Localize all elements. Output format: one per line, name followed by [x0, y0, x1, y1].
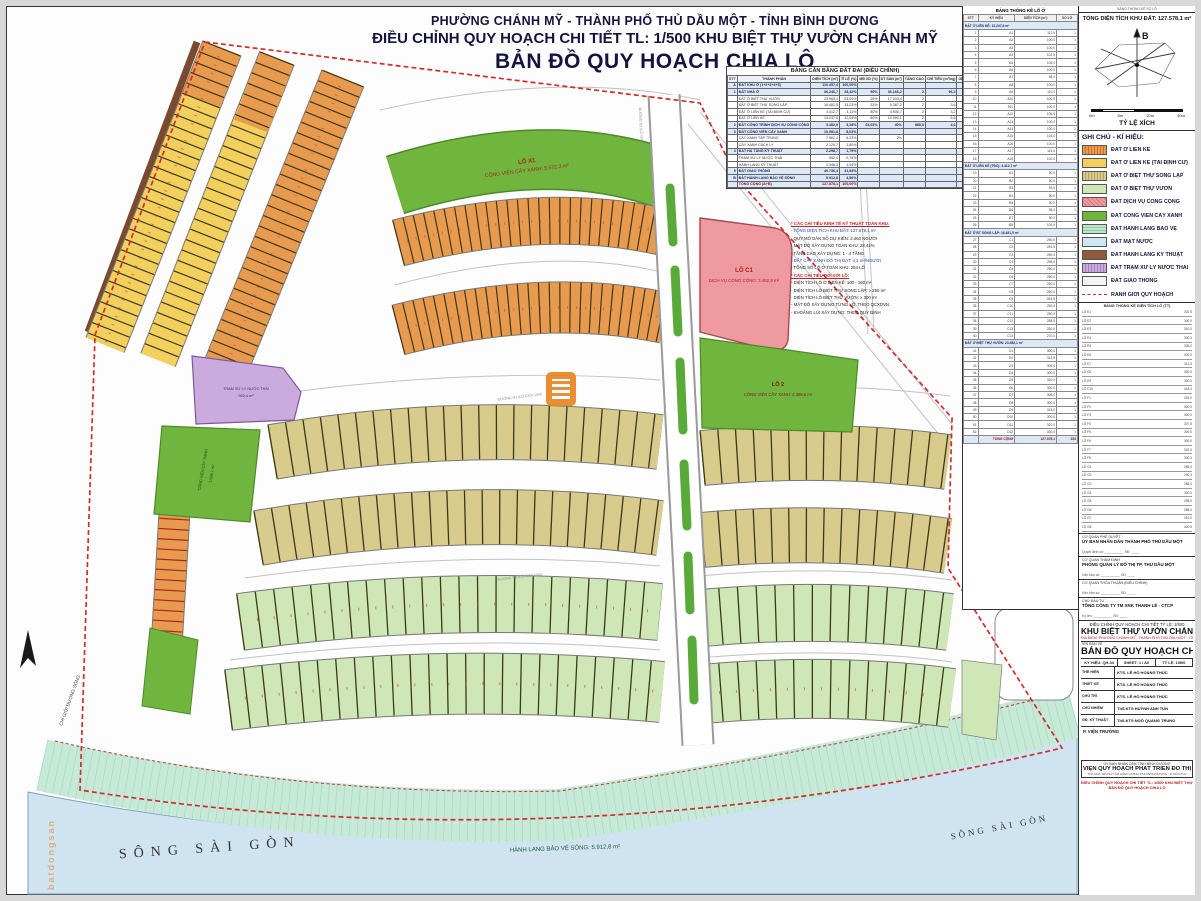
balance-cell: 33%	[858, 102, 879, 109]
note-line: - DIỆN TÍCH LÔ Ở LIÊN KẾ: 100 - 160 m²	[791, 279, 963, 286]
stats-row: 19B190,01	[964, 170, 1078, 177]
cont-lot-id: LÔ G8	[1082, 525, 1091, 529]
balance-cell	[728, 108, 738, 115]
stats-cell: 1	[964, 29, 979, 36]
stats-cell: 300,0	[1015, 347, 1057, 354]
park2-lot-label: LÔ 2	[772, 380, 784, 388]
mini-header: BẢNG THỐNG KÊ SỐ LÔ	[1079, 6, 1195, 13]
balance-col-header: DT SÀN (m²)	[879, 76, 903, 83]
road-label-1: ĐƯỜNG N3 (LỘ GIỚI 13m)	[497, 391, 542, 401]
cont-lot-id: LÔ E7	[1082, 362, 1091, 366]
stats-cell: 255,0	[1015, 258, 1057, 265]
legend-item-label: ĐẤT Ở BIỆT THỰ VƯỜN	[1111, 186, 1172, 192]
stats-cell: 1	[1057, 318, 1078, 325]
stats-row: 17A17115,01	[964, 148, 1078, 155]
stats-cell: 14	[964, 125, 979, 132]
balance-cell: 7.961,1	[811, 135, 840, 142]
stats-cell: 22	[964, 192, 979, 199]
stats-cell: B3	[978, 184, 1015, 191]
balance-cell	[879, 168, 903, 175]
stats-cell: 1	[1057, 369, 1078, 376]
balance-cell	[925, 141, 957, 148]
balance-cell: B	[728, 174, 738, 181]
stats-table-title: BẢNG THỐNG KÊ LÔ Ở	[963, 6, 1078, 14]
agency-signature-line: Ký tên: __________ SĐ: ____	[1082, 614, 1192, 618]
balance-cell	[903, 148, 925, 155]
balance-row: ĐẤT Ở LIÊN KẾ13.247,612,04%80%10.590,126…	[728, 115, 976, 122]
stats-row: 34C8250,01	[964, 288, 1078, 295]
stats-row: 25B790,01	[964, 214, 1078, 221]
balance-table-header: STTTHÀNH PHẦNDIỆN TÍCH (m²)TỈ LỆ (%)MĐ X…	[728, 76, 976, 83]
cont-lot-area: 305,0	[1184, 344, 1192, 348]
stats-row: 22B490,01	[964, 192, 1078, 199]
cont-lot-area: 300,0	[1184, 405, 1192, 409]
watermark-vertical-text: batdongsan	[46, 770, 68, 890]
cont-row: LÔ F5300,0	[1082, 429, 1192, 438]
stats-cell: A4	[978, 51, 1015, 58]
balance-cell: 4	[728, 148, 738, 155]
stats-cell: 1	[1057, 414, 1078, 421]
stats-cell: 47	[964, 391, 979, 398]
balance-cell: 4,0	[925, 122, 957, 129]
cont-lot-id: LÔ E6	[1082, 353, 1091, 357]
note-line: - TẦNG CAO XÂY DỰNG: 1 - 4 TẦNG	[791, 250, 963, 257]
stats-cell: A5	[978, 59, 1015, 66]
stats-cell: C6	[978, 273, 1015, 280]
stats-cell: C3	[978, 251, 1015, 258]
stats-cell: 90,0	[1015, 177, 1057, 184]
stats-cell: 260,0	[1015, 273, 1057, 280]
land-balance-table: BẢNG CÂN BẰNG ĐẤT ĐAI (ĐIỀU CHỈNH) STTTH…	[726, 66, 964, 189]
stats-cell: 100,0	[1015, 118, 1057, 125]
stats-cell: 106,5	[1015, 111, 1057, 118]
crew-row: CHỦ TRÌKTS. LÊ HỒ HOÀNG THÚC	[1081, 691, 1193, 703]
garden-villa-bands	[228, 604, 952, 700]
stats-cell: D7	[978, 391, 1015, 398]
cont-lot-id: LÔ G6	[1082, 508, 1091, 512]
stats-cell: D2	[978, 354, 1015, 361]
agency-block: CHỦ ĐẦU TƯTỔNG CÔNG TY TM XNK THANH LỄ -…	[1079, 598, 1195, 621]
balance-cell	[858, 148, 879, 155]
balance-cell: HÀNH LANG KỸ THUẬT	[737, 161, 810, 168]
institute-name: VIỆN QUY HOẠCH PHÁT TRIỂN ĐÔ THỊ	[1083, 766, 1191, 772]
stats-cell: 1	[1057, 266, 1078, 273]
legend-item: RANH GIỚI QUY HOẠCH	[1082, 288, 1192, 301]
crew-role: GĐ. KỸ THUẬT	[1081, 715, 1115, 726]
note-line: - MẬT ĐỘ XÂY DỰNG TỪNG LÔ: THEO QCXDVN	[791, 301, 963, 308]
stats-cell: 7	[964, 74, 979, 81]
balance-row: 4ĐẤT HẠ TẦNG KỸ THUẬT2.298,71,79%1,8	[728, 148, 976, 155]
sw-cvx-swatch	[1082, 211, 1107, 221]
scale-title: TỶ LỆ XÍCH	[1079, 120, 1195, 127]
stats-cell: 1	[1057, 354, 1078, 361]
cont-row: LÔ E10318,0	[1082, 386, 1192, 395]
stats-col-header: KÝ HIỆU	[978, 15, 1015, 22]
stats-cell: A13	[978, 118, 1015, 125]
stats-row: 18A18120,01	[964, 155, 1078, 162]
balance-cell	[903, 155, 925, 162]
cont-lot-id: LÔ G7	[1082, 516, 1091, 520]
stats-cell: 112,5	[1015, 29, 1057, 36]
cont-lot-id: LÔ E1	[1082, 310, 1091, 314]
cont-lot-id: LÔ E9	[1082, 379, 1091, 383]
stats-row: 15A15104,01	[964, 133, 1078, 140]
legend-item-label: RANH GIỚI QUY HOẠCH	[1111, 292, 1173, 298]
balance-cell: 17.033,4	[879, 95, 903, 102]
stats-cell: 310,0	[1015, 421, 1057, 428]
stats-cell: 42	[964, 354, 979, 361]
tb-drawing-code: KÝ HIỆU: QH-04	[1081, 659, 1118, 666]
cont-lot-area: 325,0	[1184, 396, 1192, 400]
stats-cell: 1	[1057, 273, 1078, 280]
balance-cell: 1.346,3	[811, 161, 840, 168]
stats-cell: 1	[1057, 170, 1078, 177]
legend-item: ĐẤT Ở BIỆT THỰ SONG LẬP	[1082, 169, 1192, 182]
cont-lot-id: LÔ E10	[1082, 387, 1093, 391]
balance-cell	[858, 128, 879, 135]
balance-cell: TỔNG CỘNG (A+B)	[737, 181, 810, 188]
stats-cell: 270,0	[1015, 332, 1057, 339]
stats-cell: D1	[978, 347, 1015, 354]
tb-project-location: ĐỊA ĐIỂM: PHƯỜNG CHÁNH MỸ - THÀNH PHỐ TH…	[1081, 636, 1193, 640]
balance-cell: 5.387,2	[879, 102, 903, 109]
balance-cell: ĐẤT Ở LIÊN KẾ (TÁI ĐỊNH CƯ)	[737, 108, 810, 115]
stats-cell: 100,0	[1015, 81, 1057, 88]
cont-row: LÔ E7312,5	[1082, 360, 1192, 369]
agency-signature-line: Văn bản số: __________ SĐ: ____	[1082, 573, 1192, 577]
balance-cell: 2	[903, 102, 925, 109]
stats-cell: 305,0	[1015, 362, 1057, 369]
cont-lot-area: 312,5	[1184, 362, 1192, 366]
wastewater-label: TRẠM XỬ LÝ NƯỚC THẢI	[223, 386, 269, 391]
cont-lot-id: LÔ F8	[1082, 456, 1091, 460]
stats-cell: 1	[1057, 59, 1078, 66]
legend-item-label: ĐẤT TRẠM XỬ LÝ NƯỚC THẢI	[1111, 265, 1188, 271]
cont-row: LÔ G4300,0	[1082, 489, 1192, 498]
legend-item-label: ĐẤT GIAO THÔNG	[1111, 278, 1158, 284]
balance-row: AĐẤT KHU Ở (1+2+3+4+5)110.457,4100,00%15…	[728, 82, 976, 89]
balance-row: CÂY XANH CÁCH LY2.120,71,80%	[728, 141, 976, 148]
stats-cell: 100,0	[1015, 125, 1057, 132]
stats-cell: 1	[1057, 347, 1078, 354]
balance-cell	[925, 148, 957, 155]
stats-cell: 1	[1057, 288, 1078, 295]
legend-item: ĐẤT Ở LIÊN KẾ (TÁI ĐỊNH CƯ)	[1082, 156, 1192, 169]
stats-cell: 250,0	[1015, 236, 1057, 243]
balance-cell: 40%	[879, 122, 903, 129]
cont-lot-area: 300,0	[1184, 379, 1192, 383]
balance-cell	[925, 174, 957, 181]
stats-row: ĐẤT Ở LIÊN KẾ: 13.247,6 m²	[964, 22, 1078, 29]
stats-cell: 250,0	[1015, 303, 1057, 310]
cont-row: LÔ G1285,0	[1082, 463, 1192, 472]
legend-item: ĐẤT HÀNH LANG KỸ THUẬT	[1082, 249, 1192, 262]
stats-cell: A17	[978, 148, 1015, 155]
stats-cell: 1	[1057, 251, 1078, 258]
stats-row: 11A11100,01	[964, 103, 1078, 110]
stats-cell: 4	[964, 51, 979, 58]
balance-cell: 63,03%	[858, 122, 879, 129]
stats-cell: 20	[964, 177, 979, 184]
balance-cell: 3.482,9	[811, 122, 840, 129]
balance-cell: ĐẤT Ở BIỆT THỰ SONG LẬP	[737, 102, 810, 109]
balance-cell: 36.246,7	[811, 89, 840, 96]
stats-cell: 1	[1057, 155, 1078, 162]
stats-cell: 28	[964, 244, 979, 251]
balance-row: CÂY XANH TẬP TRUNG7.961,16,23%2%	[728, 135, 976, 142]
scale-tick-label: 20m	[1146, 113, 1154, 118]
balance-cell: CÂY XANH CÁCH LY	[737, 141, 810, 148]
stats-cell: 5	[964, 59, 979, 66]
stats-cell: C11	[978, 310, 1015, 317]
balance-cell	[879, 148, 903, 155]
stats-cell: 1	[1057, 74, 1078, 81]
cont-lot-id: LÔ F7	[1082, 448, 1091, 452]
stats-cell: 1	[1057, 281, 1078, 288]
stats-cell: 1	[1057, 177, 1078, 184]
cont-lot-area: 420,5	[1184, 525, 1192, 529]
stats-cell: 250,0	[1015, 266, 1057, 273]
stats-cell: 27	[964, 236, 979, 243]
stats-cell: A2	[978, 37, 1015, 44]
balance-cell: 10.081,8	[811, 128, 840, 135]
balance-cell: 2	[728, 122, 738, 129]
balance-cell: 25%	[858, 95, 879, 102]
stats-cell: 1	[1057, 44, 1078, 51]
balance-cell: 2	[903, 108, 925, 115]
north-arrow-icon	[20, 630, 36, 668]
stats-cell: C12	[978, 318, 1015, 325]
stats-cell: 17	[964, 148, 979, 155]
stats-cell: 1	[1057, 236, 1078, 243]
stats-cell: D9	[978, 406, 1015, 413]
cont-row: LÔ F3300,0	[1082, 411, 1192, 420]
stats-section-cell: ĐẤT Ở LIÊN KẾ: 13.247,6 m²	[964, 22, 1078, 29]
tb-drawing-name: BẢN ĐỒ QUY HOẠCH CHIA LÔ	[1081, 646, 1193, 657]
balance-cell	[728, 135, 738, 142]
stats-cell: 250,0	[1015, 251, 1057, 258]
stats-row: 16A16100,01	[964, 140, 1078, 147]
stats-cell: 315,0	[1015, 406, 1057, 413]
cont-lot-area: 300,0	[1184, 336, 1192, 340]
stats-row: 49D9315,01	[964, 406, 1078, 413]
cont-lot-id: LÔ E4	[1082, 336, 1091, 340]
sw-gt-swatch	[1082, 276, 1107, 286]
balance-cell	[728, 141, 738, 148]
stats-row: 20B290,01	[964, 177, 1078, 184]
balance-cell: 40.736,4	[811, 168, 840, 175]
balance-cell	[858, 141, 879, 148]
balance-col-header: TẦNG CAO	[903, 76, 925, 83]
agency-name: ỦY BAN NHÂN DÂN THÀNH PHỐ THỦ DẦU MỘT	[1082, 539, 1192, 544]
stats-cell: 1	[1057, 148, 1078, 155]
cont-lot-id: LÔ F1	[1082, 396, 1091, 400]
cont-row: LÔ G8420,5	[1082, 523, 1192, 532]
cont-row: LÔ F8300,0	[1082, 454, 1192, 463]
cont-row: LÔ F2300,0	[1082, 403, 1192, 412]
stats-cell: 262,5	[1015, 295, 1057, 302]
cont-lot-area: 300,0	[1184, 491, 1192, 495]
balance-cell	[879, 141, 903, 148]
balance-cell: 3,6	[925, 102, 957, 109]
stats-cell: 127.578,1	[1015, 436, 1057, 443]
cont-lot-id: LÔ E5	[1082, 344, 1091, 348]
stats-row: 7A798,01	[964, 74, 1078, 81]
stats-cell: 100,0	[1015, 96, 1057, 103]
stats-cell: 1	[1057, 133, 1078, 140]
stats-cell: 300,0	[1015, 414, 1057, 421]
legend: GHI CHÚ - KÍ HIỆU: ĐẤT Ở LIÊN KẾĐẤT Ở LI…	[1079, 131, 1195, 302]
stats-cell: 6	[964, 66, 979, 73]
stats-cell: D8	[978, 399, 1015, 406]
stats-cell: C13	[978, 325, 1015, 332]
stats-row: 46D6300,01	[964, 384, 1078, 391]
balance-col-header: THÀNH PHẦN	[737, 76, 810, 83]
agency-block: CƠ QUAN THỎA THUẬN (ĐIỀU CHỈNH)Văn bản s…	[1079, 580, 1195, 598]
garden-villa-east-edge	[962, 660, 1002, 740]
stats-section-cell: ĐẤT Ở LIÊN KẾ (TĐC): 4.412,7 m²	[964, 162, 1078, 169]
stats-row: 45D5320,01	[964, 377, 1078, 384]
stats-cell: 102,5	[1015, 51, 1057, 58]
scale-tick-label: 0m	[1089, 113, 1095, 118]
stats-row: 32C6260,01	[964, 273, 1078, 280]
legend-item: ĐẤT MẶT NƯỚC	[1082, 235, 1192, 248]
cont-row: LÔ E8300,0	[1082, 368, 1192, 377]
stats-cell: TỔNG CỘNG	[978, 436, 1015, 443]
cont-lot-area: 300,0	[1184, 439, 1192, 443]
stats-cell: 250,0	[1015, 288, 1057, 295]
stats-cell: 1	[1057, 103, 1078, 110]
cont-lot-area: 322,0	[1184, 448, 1192, 452]
central-boulevard	[664, 95, 698, 745]
balance-cell: 2.120,7	[811, 141, 840, 148]
legend-title: GHI CHÚ - KÍ HIỆU:	[1082, 134, 1192, 141]
cont-lot-id: LÔ G2	[1082, 473, 1091, 477]
stats-cell: B7	[978, 214, 1015, 221]
footer-project-lines: ĐIỀU CHỈNH QUY HOẠCH CHI TIẾT TL: 1/500 …	[1081, 780, 1193, 790]
balance-row: ĐẤT Ở BIỆT THỰ SONG LẬP16.481,515,23%33%…	[728, 102, 976, 109]
stats-cell: 1	[1057, 221, 1078, 228]
note-line: * CÁC CHỈ TIÊU ĐỐI VỚI LÔ:	[791, 272, 963, 279]
legend-item-label: ĐẤT MẶT NƯỚC	[1111, 239, 1153, 245]
scale-tick-label: 5m	[1118, 113, 1124, 118]
sw-bsl-swatch	[1082, 171, 1107, 181]
stats-cell: 104,0	[1015, 133, 1057, 140]
stats-cell: C5	[978, 266, 1015, 273]
balance-cell	[879, 82, 903, 89]
cont-row: LÔ F1325,0	[1082, 394, 1192, 403]
agency-signature-line: Quyết định số: __________ SĐ: ____	[1082, 550, 1192, 554]
balance-col-header: MĐ XD (%)	[858, 76, 879, 83]
balance-cell	[925, 168, 957, 175]
stats-cell: 90,0	[1015, 170, 1057, 177]
stats-row: 3A3100,01	[964, 44, 1078, 51]
stats-cell: 300,0	[1015, 369, 1057, 376]
stats-cell: 330,0	[1015, 428, 1057, 435]
balance-cell: 36.166,2	[879, 89, 903, 96]
balance-col-header: DIỆN TÍCH (m²)	[811, 76, 840, 83]
balance-cell	[728, 155, 738, 162]
stats-cell: 51	[964, 421, 979, 428]
cont-lot-area: 300,0	[1184, 456, 1192, 460]
stats-cell: 1	[1057, 207, 1078, 214]
stats-row: 43D3305,01	[964, 362, 1078, 369]
stats-cell: A10	[978, 96, 1015, 103]
note-line: - ĐẤT CÂY XANH ĐÔ THỊ ĐẠT: 4,1 m²/NGƯỜI	[791, 257, 963, 264]
stats-cell	[964, 436, 979, 443]
balance-cell: 2	[903, 115, 925, 122]
balance-cell	[903, 168, 925, 175]
sw-mn-swatch	[1082, 237, 1107, 247]
institute-address: TÒA NHÀ TRUNG TÂM HÀNH CHÍNH TỈNH BÌNH D…	[1083, 772, 1191, 776]
balance-cell	[858, 168, 879, 175]
balance-cell: 0,75%	[840, 155, 858, 162]
balance-cell: 4.412,7	[811, 108, 840, 115]
stats-cell: B5	[978, 199, 1015, 206]
stats-cell: 23	[964, 199, 979, 206]
stats-cell: A1	[978, 29, 1015, 36]
stats-cell: 90,0	[1015, 214, 1057, 221]
scale-seg-2	[1102, 109, 1135, 112]
stats-cell: B2	[978, 177, 1015, 184]
stats-cell: 1	[1057, 88, 1078, 95]
stats-cell: 90,0	[1015, 199, 1057, 206]
compass-north-label: B	[1142, 31, 1149, 41]
stats-cell: C4	[978, 258, 1015, 265]
park-west-lot	[154, 426, 260, 522]
stats-cell: 1	[1057, 184, 1078, 191]
stats-cell: 1	[1057, 192, 1078, 199]
balance-cell: 4,56%	[840, 174, 858, 181]
stats-row: 29C3250,01	[964, 251, 1078, 258]
balance-cell	[879, 128, 903, 135]
stats-section-cell: ĐẤT Ở BIỆT THỰ VƯỜN: 23.983,1 m²	[964, 340, 1078, 347]
stats-cell: 8	[964, 81, 979, 88]
total-area-label: TỔNG DIỆN TÍCH KHU ĐẤT: 127.578,1 m²	[1079, 13, 1195, 25]
crew-row: CHỦ NHIỆMThS.KTS HUỲNH ANH TÚN	[1081, 703, 1193, 715]
balance-cell	[879, 161, 903, 168]
cont-lot-id: LÔ F2	[1082, 405, 1091, 409]
cont-lot-id: LÔ G5	[1082, 499, 1091, 503]
stats-table-header: STTKÝ HIỆUDIỆN TÍCH (m²)SỐ LÔ	[964, 15, 1078, 22]
agency-name: PHÒNG QUẢN LÝ ĐÔ THỊ TP. THỦ DẦU MỘT	[1082, 562, 1192, 567]
note-line: - TỔNG DIỆN TÍCH KHU ĐẤT: 127.578,1 m²	[791, 227, 963, 234]
stats-row: TỔNG CỘNG127.578,1254	[964, 436, 1078, 443]
cont-row: LÔ E9300,0	[1082, 377, 1192, 386]
stats-cell: 100,0	[1015, 103, 1057, 110]
stats-cell: 32	[964, 273, 979, 280]
stats-cell: 1	[1057, 96, 1078, 103]
stats-cell: 18	[964, 155, 979, 162]
park2-area-label: CÔNG VIÊN CÂY XANH: 2.389,6 m²	[744, 392, 813, 397]
cont-lot-area: 300,0	[1184, 319, 1192, 323]
cont-row: LÔ E5305,0	[1082, 343, 1192, 352]
cont-lot-id: LÔ E2	[1082, 319, 1091, 323]
stats-cell: 34	[964, 288, 979, 295]
stats-cell: 100,0	[1015, 37, 1057, 44]
stats-cell: 11	[964, 103, 979, 110]
stats-cell: A14	[978, 125, 1015, 132]
agency-block: CƠ QUAN PHÊ DUYỆTỦY BAN NHÂN DÂN THÀNH P…	[1079, 534, 1195, 557]
cont-lot-id: LÔ E8	[1082, 370, 1091, 374]
stats-cell: C9	[978, 295, 1015, 302]
legend-item-label: ĐẤT Ở LIÊN KẾ (TÁI ĐỊNH CƯ)	[1111, 160, 1188, 166]
stats-cell: D10	[978, 414, 1015, 421]
footer-line-2: BẢN ĐỒ QUY HOẠCH CHIA LÔ	[1081, 785, 1193, 790]
balance-cell: 110.457,4	[811, 82, 840, 89]
footer-line-1: ĐIỀU CHỈNH QUY HOẠCH CHI TIẾT TL: 1/500 …	[1081, 780, 1193, 785]
sw-btv-swatch	[1082, 184, 1107, 194]
